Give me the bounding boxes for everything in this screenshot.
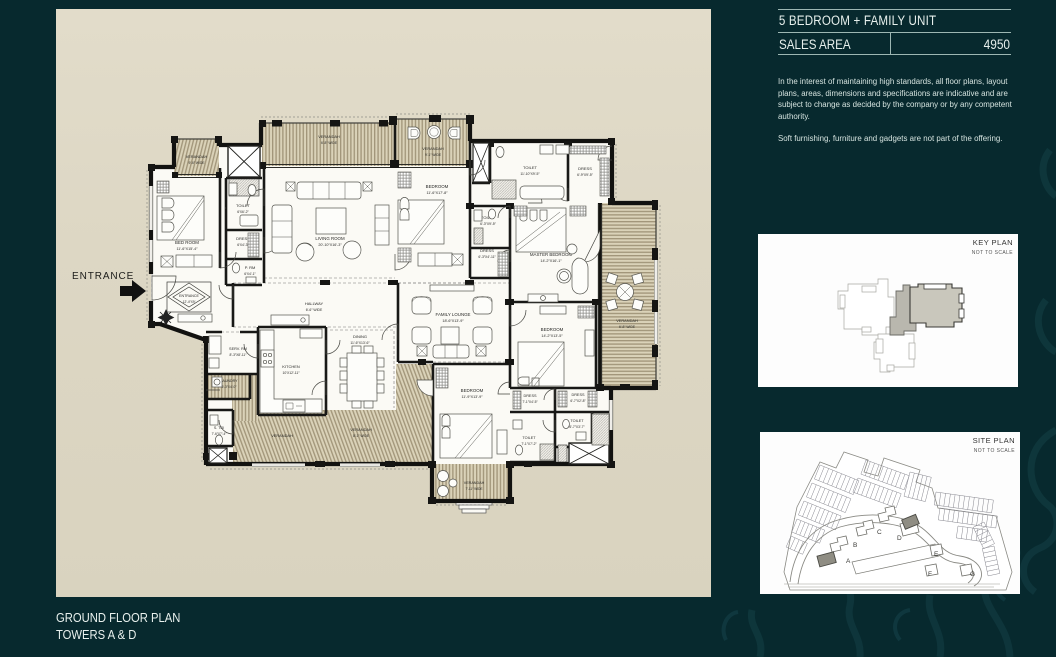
svg-text:6′-8″ WIDE: 6′-8″ WIDE [321,141,338,145]
svg-text:LIVING ROOM: LIVING ROOM [315,236,345,241]
svg-text:LAUNDRY: LAUNDRY [220,379,238,383]
svg-text:6′X6′-2″: 6′X6′-2″ [237,210,249,214]
svg-text:20′-10″X16′-3″: 20′-10″X16′-3″ [318,243,342,247]
svg-text:DRESS: DRESS [571,393,585,397]
svg-text:6′-3″X4′-0″: 6′-3″X4′-0″ [222,385,238,389]
svg-text:9′-6″ WIDE: 9′-6″ WIDE [188,161,205,165]
svg-text:6′-3″X9′-5″: 6′-3″X9′-5″ [480,222,497,226]
svg-text:6′X4′-1″: 6′X4′-1″ [244,272,256,276]
svg-text:6′-7″X3′-7″: 6′-7″X3′-7″ [569,425,585,429]
svg-text:VERANDAH: VERANDAH [318,134,340,139]
svg-text:E: E [934,551,939,558]
svg-text:KITCHEN: KITCHEN [282,364,300,369]
svg-text:14′-2″X13′-5″: 14′-2″X13′-5″ [541,334,563,338]
svg-text:VERANDAH: VERANDAH [186,154,208,159]
svg-text:6′-7″X2′-8″: 6′-7″X2′-8″ [570,399,586,403]
svg-text:VERANDAH: VERANDAH [464,481,485,485]
svg-text:6′-8″ WIDE: 6′-8″ WIDE [619,325,636,329]
svg-text:FAMILY LOUNGE: FAMILY LOUNGE [436,312,471,317]
svg-text:8′-1″ WIDE: 8′-1″ WIDE [353,434,370,438]
svg-text:VERANDAH: VERANDAH [271,433,293,438]
svg-text:TOILET: TOILET [522,436,536,440]
svg-text:6′-6″ WIDE: 6′-6″ WIDE [306,308,323,312]
svg-text:DRESS: DRESS [578,166,592,171]
svg-text:8′-3″X8′-11″: 8′-3″X8′-11″ [230,353,248,357]
svg-text:18′-6″X13′-9″: 18′-6″X13′-9″ [442,319,464,323]
svg-text:B: B [853,542,857,549]
svg-text:BEDROOM: BEDROOM [461,388,484,393]
svg-text:6′-9″X9′-5″: 6′-9″X9′-5″ [577,173,594,177]
svg-text:D: D [897,535,902,542]
svg-text:DRESS: DRESS [523,394,537,398]
svg-text:A: A [846,558,851,565]
svg-text:G: G [970,571,975,578]
svg-text:12′-4″X9′: 12′-4″X9′ [183,300,196,304]
svg-text:C: C [877,529,882,536]
svg-text:11′-6″X15′-4″: 11′-6″X15′-4″ [177,247,199,251]
svg-text:HALLWAY: HALLWAY [305,301,324,306]
svg-text:10′X12′-11″: 10′X12′-11″ [283,371,301,375]
svg-text:MASTER BEDROOM: MASTER BEDROOM [530,252,573,257]
svg-text:11′-6″X13′-6″: 11′-6″X13′-6″ [350,341,370,345]
svg-text:7′-1″X7′-2″: 7′-1″X7′-2″ [521,442,537,446]
svg-text:14′-2″X16′-1″: 14′-2″X16′-1″ [540,259,562,263]
svg-text:ENTRANCE: ENTRANCE [179,294,199,298]
svg-text:9′-1″ WIDE: 9′-1″ WIDE [425,153,442,157]
svg-text:TOILET: TOILET [570,419,584,423]
svg-text:P. RM: P. RM [245,265,256,270]
svg-text:11′-6″X17′-8″: 11′-6″X17′-8″ [427,191,449,195]
svg-text:VERANDAH: VERANDAH [422,146,444,151]
svg-text:11′-9″X13′-9″: 11′-9″X13′-9″ [462,395,484,399]
svg-text:BEDROOM: BEDROOM [426,184,449,189]
svg-text:BED ROOM: BED ROOM [175,240,199,245]
svg-text:VERANDAH: VERANDAH [616,318,638,323]
svg-text:TOILET: TOILET [523,165,537,170]
svg-text:TOILET: TOILET [236,203,250,208]
svg-text:DINING: DINING [353,334,367,339]
svg-text:BEDROOM: BEDROOM [541,327,564,332]
svg-text:7′-11″ WIDE: 7′-11″ WIDE [465,487,482,491]
svg-text:7′-1″X4′-5″: 7′-1″X4′-5″ [522,400,538,404]
svg-text:VERANDAH: VERANDAH [350,427,372,432]
svg-text:F: F [928,571,932,578]
svg-text:6′-3″X4′-11″: 6′-3″X4′-11″ [478,255,496,259]
svg-text:11′-10″X9′-5″: 11′-10″X9′-5″ [520,172,540,176]
